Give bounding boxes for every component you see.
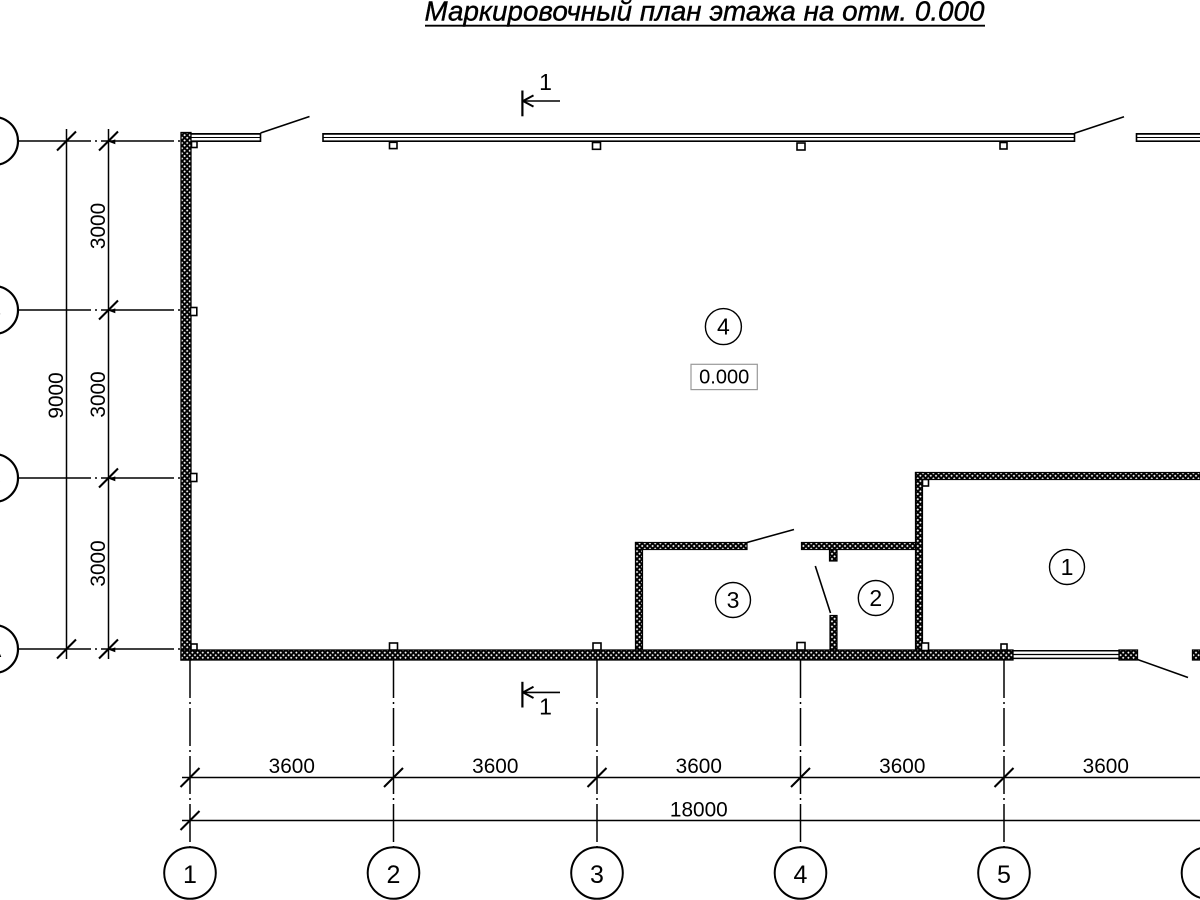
svg-text:3600: 3600 (676, 755, 722, 778)
svg-text:3000: 3000 (87, 371, 110, 417)
svg-text:3000: 3000 (87, 540, 110, 586)
svg-text:3600: 3600 (269, 755, 315, 778)
svg-text:1: 1 (539, 69, 552, 95)
svg-text:2: 2 (387, 861, 401, 889)
svg-text:18000: 18000 (670, 798, 728, 821)
svg-text:1: 1 (539, 694, 552, 720)
svg-text:3600: 3600 (1083, 755, 1129, 778)
svg-text:3: 3 (727, 587, 740, 613)
svg-text:В: В (0, 298, 1, 323)
svg-text:0.000: 0.000 (699, 367, 749, 389)
svg-text:4: 4 (717, 314, 730, 340)
svg-text:1: 1 (1061, 554, 1074, 580)
svg-text:4: 4 (794, 861, 808, 889)
svg-text:5: 5 (997, 861, 1011, 889)
svg-text:9000: 9000 (45, 372, 68, 418)
svg-text:3000: 3000 (87, 203, 110, 249)
svg-text:3600: 3600 (879, 755, 925, 778)
svg-text:Б: Б (0, 466, 1, 491)
svg-text:3: 3 (590, 861, 604, 889)
svg-text:1: 1 (183, 861, 197, 889)
svg-text:2: 2 (869, 585, 882, 611)
svg-text:Маркировочный план этажа на от: Маркировочный план этажа на отм. 0.000 (425, 0, 985, 26)
svg-text:3600: 3600 (472, 755, 518, 778)
